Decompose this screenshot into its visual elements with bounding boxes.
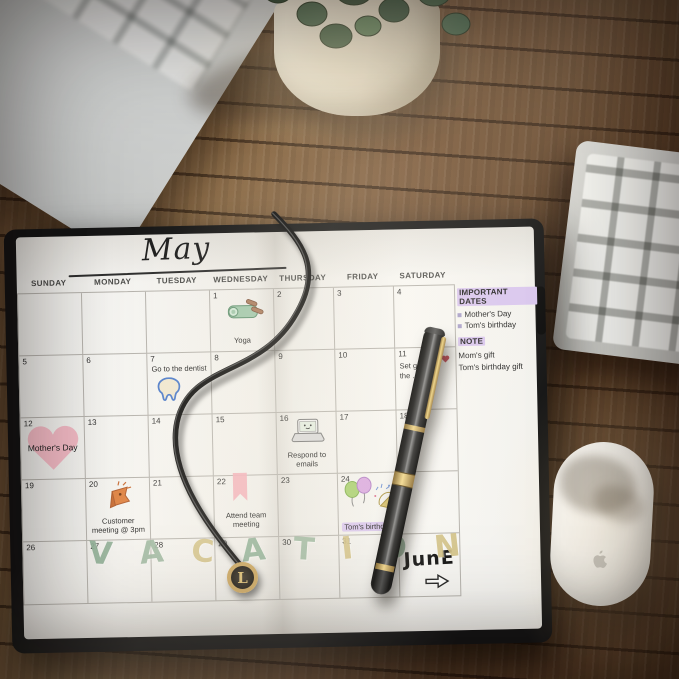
day-header-sunday: SUNDAY <box>17 278 81 288</box>
event-note: Respond to emails <box>278 449 335 470</box>
next-month-label: JunE <box>403 546 455 571</box>
calendar-cell: 14 <box>149 414 214 477</box>
important-dates-list: Mother's DayTom's birthday <box>457 309 537 331</box>
desk-scene-photo: May SUNDAYMONDAYTUESDAYWEDNESDAYTHURSDAY… <box>0 0 679 679</box>
calendar-cell: 8 <box>211 351 276 414</box>
calendar-cell: 6 <box>83 354 148 417</box>
month-title: May <box>55 228 296 272</box>
date-number: 3 <box>337 289 342 298</box>
pink-ribbon-sticker <box>232 473 249 508</box>
calendar-cell: 5 <box>19 355 84 418</box>
date-number: 4 <box>397 287 402 296</box>
event-note: Mother's Day <box>22 442 83 454</box>
date-number: 27 <box>90 542 99 551</box>
event-note: Customer meeting @ 3pm <box>88 515 149 536</box>
date-number: 19 <box>25 481 34 490</box>
date-number: 21 <box>153 478 162 487</box>
calendar-cell: 16Respond to emails <box>277 412 338 475</box>
right-arrow-icon <box>424 573 450 594</box>
calendar-cell: 13 <box>85 416 150 479</box>
date-number: 9 <box>278 352 283 361</box>
calendar-cell <box>82 292 147 355</box>
date-number: 16 <box>280 414 289 423</box>
date-number: 5 <box>22 357 27 366</box>
computer-mouse <box>548 439 656 608</box>
day-header-thursday: THURSDAY <box>273 273 333 283</box>
date-number: 8 <box>214 353 219 362</box>
calendar-cell: 22Attend team meeting <box>214 475 279 538</box>
calendar-cell: 17 <box>337 411 398 474</box>
day-header-wednesday: WEDNESDAY <box>209 274 273 284</box>
tooth-sticker <box>156 377 183 407</box>
calendar-cell <box>146 290 211 353</box>
important-date-item: Mother's Day <box>457 309 537 320</box>
bullet-square-icon <box>458 324 462 328</box>
date-number: 11 <box>398 349 406 358</box>
calendar-content: May SUNDAYMONDAYTUESDAYWEDNESDAYTHURSDAY… <box>16 227 542 640</box>
notes-panel: IMPORTANT DATES Mother's DayTom's birthd… <box>457 287 539 376</box>
important-date-text: Tom's birthday <box>465 320 517 330</box>
calendar-cell: 3 <box>334 287 395 350</box>
orange-flag-sticker <box>104 480 137 518</box>
keyboard-keys <box>565 153 679 358</box>
important-date-item: Tom's birthday <box>458 320 538 331</box>
date-number: 1 <box>213 291 218 300</box>
open-planner: May SUNDAYMONDAYTUESDAYWEDNESDAYTHURSDAY… <box>4 218 553 653</box>
date-number: 28 <box>154 540 163 549</box>
day-header-monday: MONDAY <box>81 277 145 287</box>
date-number: 7 <box>150 355 155 364</box>
date-number: 17 <box>340 413 349 422</box>
calendar-cell: 2 <box>274 288 335 351</box>
laptop-sticker <box>291 417 328 450</box>
date-number: 23 <box>281 476 290 485</box>
date-number: 29 <box>218 539 227 548</box>
date-number: 2 <box>277 290 282 299</box>
date-number: 10 <box>338 351 347 360</box>
calendar-cell: 12Mother's Day <box>21 417 86 480</box>
calendar-cell: 15 <box>213 413 278 476</box>
calendar-cell: 28 <box>151 538 216 601</box>
note-item: Tom's birthday gift <box>459 362 539 373</box>
calendar-cell: 10 <box>335 349 396 412</box>
event-note: Yoga <box>212 335 273 346</box>
pen-tail <box>371 569 393 596</box>
note-item: Mom's gift <box>458 350 538 361</box>
calendar-cell <box>18 293 83 356</box>
bullet-square-icon <box>457 313 461 317</box>
date-number: 13 <box>88 418 97 427</box>
date-number: 14 <box>152 416 161 425</box>
date-number: 31 <box>342 536 351 545</box>
date-number: 15 <box>216 415 225 424</box>
calendar-cell: 1Yoga <box>210 289 275 352</box>
event-note: Attend team meeting <box>216 510 277 531</box>
calendar-cell: 9 <box>275 350 336 413</box>
event-note: Go to the dentist <box>148 363 209 374</box>
date-number: 30 <box>282 538 291 547</box>
plant-leaves <box>208 0 482 90</box>
note-title: NOTE <box>458 337 485 347</box>
calendar-cell: 30 <box>279 536 340 599</box>
notes-list: Mom's giftTom's birthday gift <box>458 350 538 373</box>
calendar-cell: JunE <box>399 533 460 596</box>
date-number: 22 <box>217 477 226 486</box>
calendar-cell: 7Go to the dentist <box>147 352 212 415</box>
apple-logo-icon <box>592 550 608 569</box>
calendar-cell: 26 <box>23 541 88 604</box>
date-number: 26 <box>26 543 35 552</box>
date-number: 20 <box>89 480 98 489</box>
day-header-tuesday: TUESDAY <box>145 275 209 285</box>
yoga-mat-sticker <box>224 297 265 329</box>
calendar-cell: 21 <box>150 476 215 539</box>
charm-medallion: L <box>227 562 258 593</box>
calendar-cell: 27 <box>87 540 152 603</box>
calendar-cell: 23 <box>278 474 339 537</box>
day-header-saturday: SATURDAY <box>393 270 453 280</box>
calendar-cell: 19 <box>22 479 87 542</box>
day-header-friday: FRIDAY <box>333 272 393 282</box>
date-number: 6 <box>86 356 91 365</box>
important-date-text: Mother's Day <box>464 309 511 319</box>
potted-plant <box>208 0 482 138</box>
important-dates-title: IMPORTANT DATES <box>457 287 537 307</box>
calendar-cell: 20Customer meeting @ 3pm <box>86 478 151 541</box>
